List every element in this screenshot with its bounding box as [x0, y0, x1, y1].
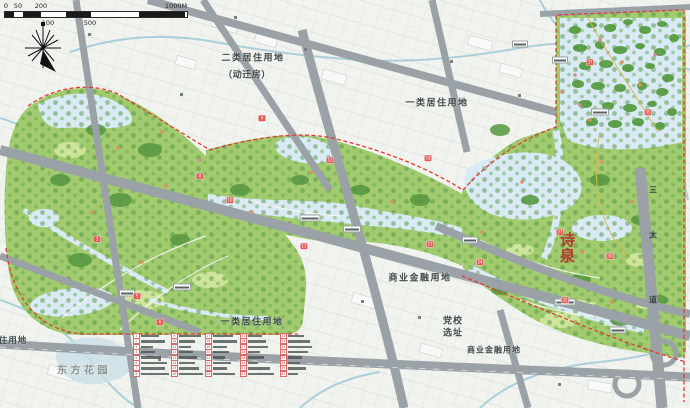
legend-item: 22 [205, 361, 237, 365]
legend-label-text [288, 351, 308, 353]
legend-item: 3 [133, 345, 169, 349]
scale-tick: 500 [84, 19, 96, 27]
red-seal-text: 诗泉 [560, 232, 577, 264]
legend-number-box: 40 [280, 371, 287, 377]
scale-bar-segments [4, 11, 188, 18]
legend-item: 20 [205, 350, 237, 354]
north-arrow-icon [20, 22, 66, 76]
numbered-marker: 30 [607, 253, 614, 259]
numbered-marker: 18 [425, 155, 432, 161]
legend-item: 19 [205, 345, 237, 349]
map-annotation-chip [512, 41, 528, 48]
legend-item: 10 [171, 339, 203, 343]
legend-label-text [288, 335, 304, 337]
legend-label-text [213, 373, 235, 375]
legend-column: 910111213141516 [171, 334, 203, 376]
road-name-char: 太 [649, 230, 657, 241]
legend-column: 1718192021222324 [205, 334, 237, 376]
legend-label-text [248, 335, 262, 337]
legend-label-text [213, 351, 229, 353]
legend-label-text [248, 362, 258, 364]
legend-label-text [288, 367, 306, 369]
legend-label-text [141, 356, 161, 358]
map-annotation-chip [343, 226, 361, 233]
legend-item: 30 [240, 361, 274, 365]
legend-item: 9 [171, 334, 203, 338]
numbered-marker: 13 [301, 243, 308, 249]
legend-item: 28 [240, 350, 274, 354]
map-annotation-chip [462, 237, 478, 244]
area-label: （动迁房） [223, 68, 271, 81]
legend-item: 18 [205, 339, 237, 343]
map-annotation-chip [173, 284, 191, 291]
legend-label-text [213, 356, 225, 358]
legend-item: 27 [240, 345, 274, 349]
map-annotation-chip [591, 109, 609, 116]
road-name-char: 三 [649, 185, 657, 196]
area-label: 二类居住用地 [221, 51, 284, 64]
legend-number-box: 8 [133, 371, 140, 377]
area-label: 住用地 [0, 334, 27, 346]
legend-number-box: 32 [240, 371, 247, 377]
legend-item: 23 [205, 366, 237, 370]
legend-label-text [179, 362, 195, 364]
scale-bar-segment [91, 12, 139, 17]
legend-label-text [213, 346, 227, 348]
legend-item: 7 [133, 366, 169, 370]
numbered-marker: 24 [477, 259, 484, 265]
legend-item: 8 [133, 372, 169, 376]
legend-item: 13 [171, 356, 203, 360]
legend-item: 17 [205, 334, 237, 338]
legend-label-text [141, 351, 155, 353]
legend-item: 35 [280, 345, 312, 349]
legend-item: 12 [171, 350, 203, 354]
legend-item: 21 [205, 356, 237, 360]
legend-item: 24 [205, 372, 237, 376]
legend-item: 39 [280, 366, 312, 370]
legend-label-text [141, 373, 169, 375]
site-plan-map: 0502001000M100500 二类居住用地（动迁房）一类居住用地商业金融用… [0, 0, 690, 408]
legend-label-text [288, 340, 310, 342]
scale-tick: 50 [14, 2, 22, 10]
numbered-marker: 27 [557, 229, 564, 235]
area-label: 商业金融用地 [388, 271, 451, 284]
numbered-marker: 21 [427, 241, 434, 247]
legend-item: 31 [240, 366, 274, 370]
scale-bar-segment [5, 12, 14, 17]
scale-tick: 1000M [165, 2, 187, 10]
legend-label-text [248, 340, 266, 342]
area-label: 一类居住用地 [220, 315, 283, 328]
legend-item: 32 [240, 372, 274, 376]
legend-label-text [141, 362, 167, 364]
legend-item: 37 [280, 356, 312, 360]
scale-bar-segment [14, 12, 23, 17]
legend-label-text [179, 351, 193, 353]
legend-label-text [179, 335, 201, 337]
legend-item: 34 [280, 339, 312, 343]
legend-label-text [179, 367, 199, 369]
legend-item: 16 [171, 372, 203, 376]
area-label: 一类居住用地 [405, 96, 468, 109]
numbered-marker: 9 [259, 115, 266, 121]
area-label: 商业金融用地 [467, 345, 521, 356]
legend-label-text [248, 346, 268, 348]
legend-label-text [248, 351, 260, 353]
numbered-marker: 35 [645, 109, 652, 115]
numbered-marker: 37 [587, 59, 594, 65]
legend-label-text [288, 362, 300, 364]
legend-item: 1 [133, 334, 169, 338]
numbered-marker: 10 [227, 197, 234, 203]
legend-item: 25 [240, 334, 274, 338]
scale-bar-segment [139, 12, 185, 17]
legend-item: 40 [280, 372, 312, 376]
legend-label-text [248, 356, 264, 358]
legend-item: 29 [240, 356, 274, 360]
legend-label-text [248, 367, 270, 369]
legend-label-text [141, 367, 165, 369]
legend-item: 33 [280, 334, 312, 338]
map-annotation-chip [552, 57, 568, 64]
scale-tick: 200 [35, 2, 47, 10]
numbered-marker: 3 [94, 236, 101, 242]
legend-label-text [179, 340, 195, 342]
numbered-marker: 32 [562, 297, 569, 303]
legend-item: 2 [133, 339, 169, 343]
legend-column: 2526272829303132 [240, 334, 274, 376]
legend-item: 38 [280, 361, 312, 365]
legend-item: 5 [133, 356, 169, 360]
scale-bar-segment [41, 12, 66, 17]
legend-label-text [288, 346, 312, 348]
legend-label-text [213, 335, 233, 337]
scale-bar-segment [23, 12, 41, 17]
numbered-marker: 12 [327, 157, 334, 163]
legend-label-text [213, 367, 227, 369]
legend-item: 15 [171, 366, 203, 370]
legend-item: 11 [171, 345, 203, 349]
legend-item: 36 [280, 350, 312, 354]
map-annotation-chip [610, 327, 627, 334]
legend-label-text [248, 373, 274, 375]
legend-label-text [213, 340, 237, 342]
legend-label-text [179, 373, 203, 375]
road-name-char: 道 [649, 295, 657, 306]
legend-label-text [288, 373, 298, 375]
scale-bar-segment [66, 12, 91, 17]
legend-label-text [179, 356, 197, 358]
legend-label-text [141, 346, 153, 348]
legend-label-text [179, 346, 191, 348]
legend-item: 6 [133, 361, 169, 365]
numbered-marker: 6 [157, 319, 164, 325]
legend-label-text [213, 362, 231, 364]
legend-label-text [141, 340, 165, 342]
area-label: 选址 [443, 326, 463, 339]
legend-label-text [141, 335, 159, 337]
legend-number-box: 24 [205, 371, 212, 377]
legend-column: 12345678 [133, 334, 169, 376]
numbered-marker: 8 [197, 173, 204, 179]
scale-tick: 0 [4, 2, 8, 10]
legend-item: 26 [240, 339, 274, 343]
legend-label-text [288, 356, 302, 358]
legend-item: 14 [171, 361, 203, 365]
map-annotation-chip [300, 215, 321, 222]
legend-number-box: 16 [171, 371, 178, 377]
legend-column: 3334353637383940 [280, 334, 312, 376]
legend-item: 4 [133, 350, 169, 354]
numbered-marker: 5 [134, 293, 141, 299]
area-label: 东方花园 [57, 362, 111, 377]
